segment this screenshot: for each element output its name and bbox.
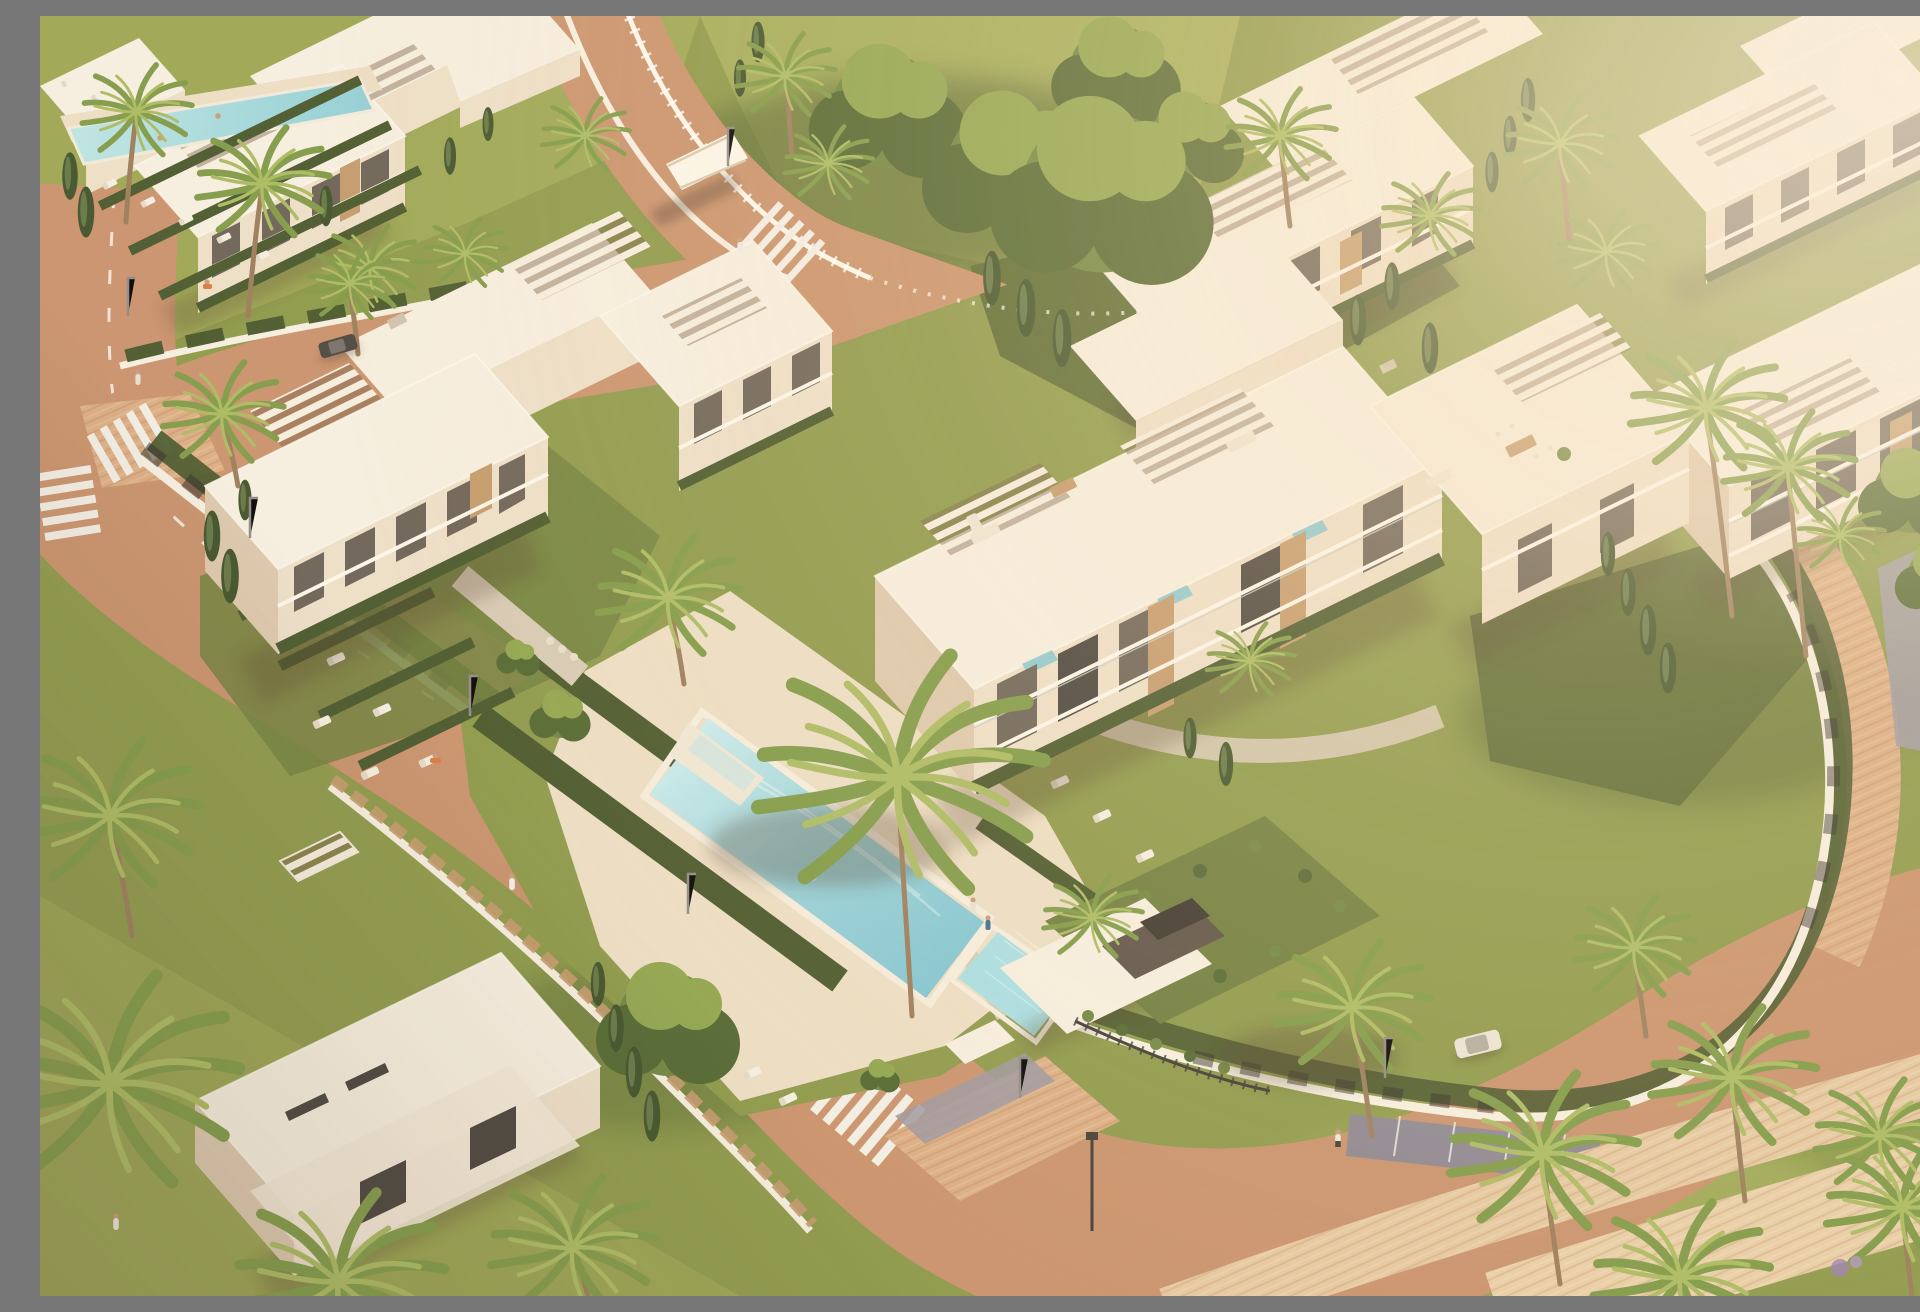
aerial-architecture-render: Golden-hour aerial rendering of a modern… [40,16,1920,1296]
render-canvas [40,16,1920,1296]
light-overlays [40,16,1920,1296]
